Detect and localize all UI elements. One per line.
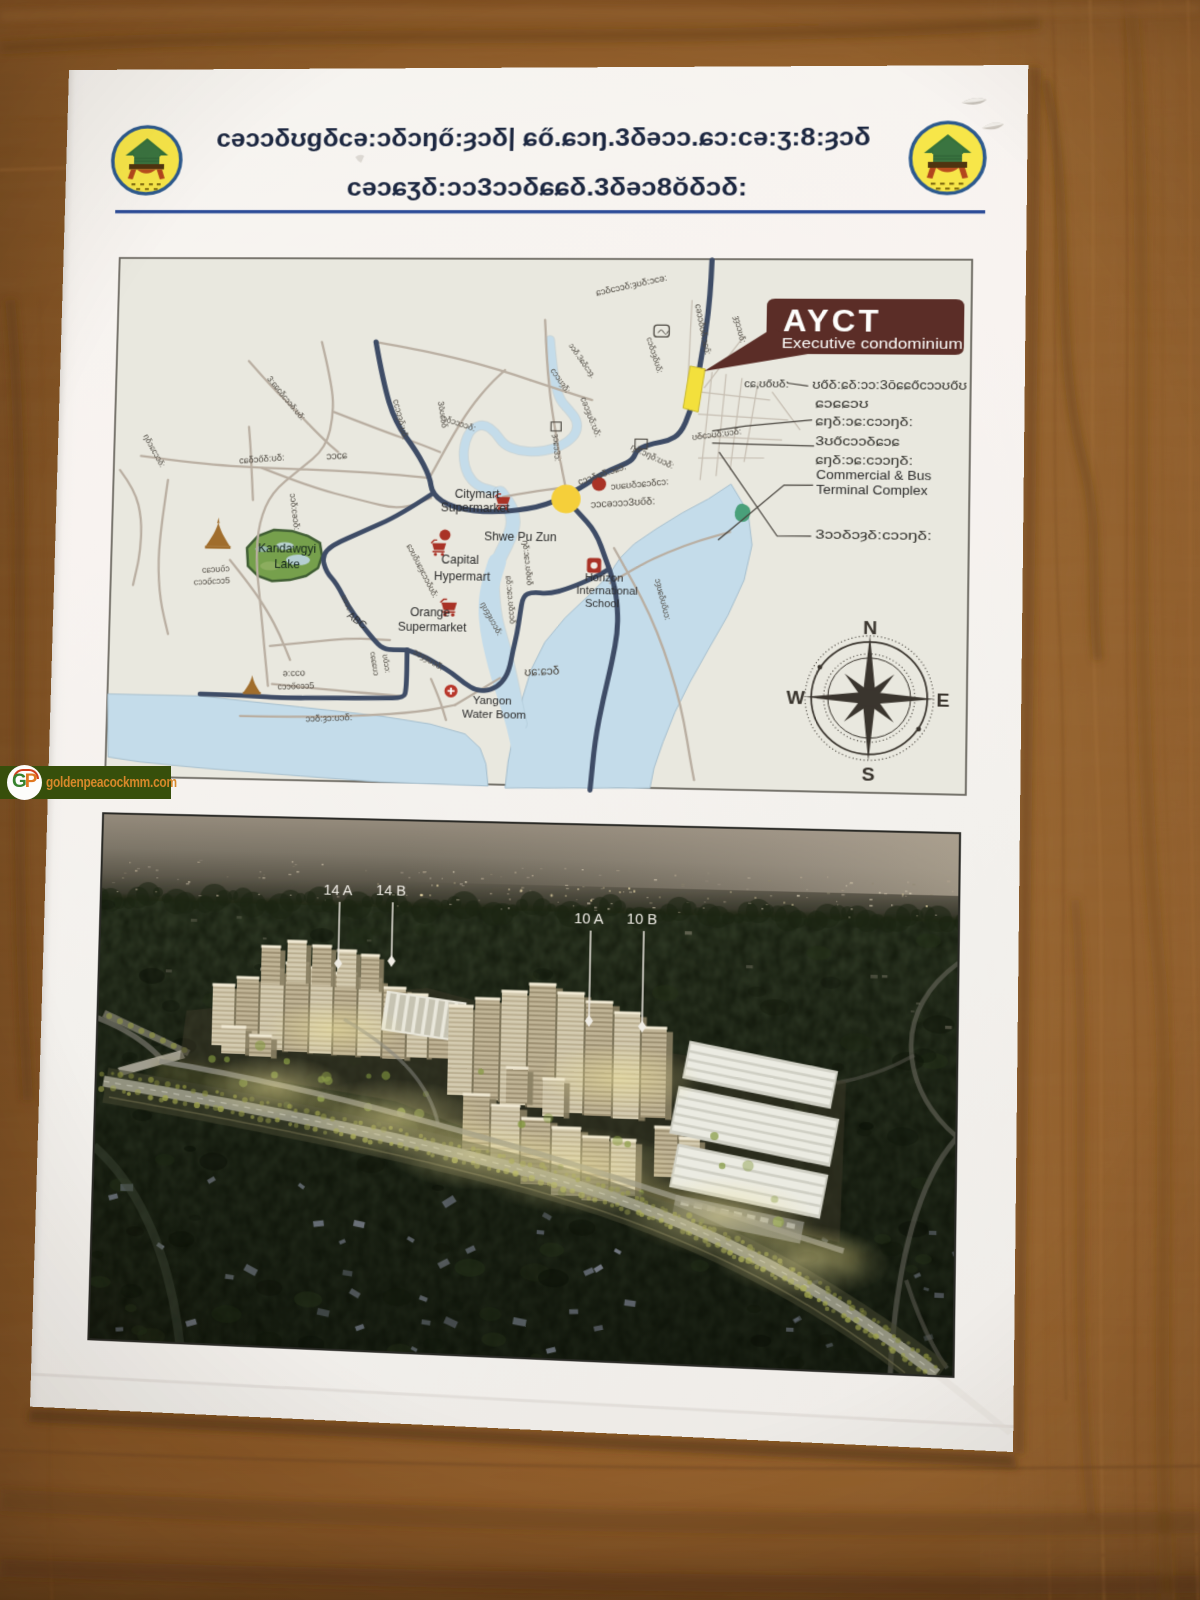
svg-text:ɕɔɕɕɔʊ: ɕɔɕɕɔʊ [815,398,869,411]
svg-text:Executive condominium: Executive condominium [782,336,963,354]
svg-text:Kandawgyi: Kandawgyi [258,543,316,556]
svg-text:Shwe Pu Zun: Shwe Pu Zun [484,531,557,544]
svg-text:International: International [576,584,638,597]
svg-text:14 B: 14 B [376,881,406,898]
svg-text:cɕ,ʊőʊδ:: cɕ,ʊőʊδ: [744,378,789,391]
svg-text:ɔɔδ:ȝɔ:ʊɔδ:: ɔɔδ:ȝɔ:ʊɔδ: [305,712,352,724]
svg-text:Citymart: Citymart [455,489,501,502]
svg-text:Hypermart: Hypermart [434,570,491,583]
svg-text:S: S [861,763,874,784]
svg-text:E: E [936,689,949,710]
svg-text:Supermarket: Supermarket [441,502,511,515]
svg-text:Water Boom: Water Boom [462,708,526,722]
svg-text:Orange: Orange [410,606,450,619]
svg-text:ʊɕ:ɕɔδ: ʊɕ:ɕɔδ [524,665,560,679]
svg-text:ʊőδ:ɕδ:ɔɔ:3ōɕɕőcɔɔʊőʊ: ʊőδ:ɕδ:ɔɔ:3ōɕɕőcɔɔʊőʊ [812,380,968,394]
svg-text:10 A: 10 A [574,910,605,928]
svg-text:School: School [585,597,619,610]
svg-text:cɕɔʊőɔ: cɕɔʊőɔ [202,563,230,575]
svg-text:Yangon: Yangon [472,694,511,707]
svg-text:Lake: Lake [274,559,300,572]
svg-text:14 A: 14 A [323,881,353,898]
svg-text:10 B: 10 B [627,910,658,928]
svg-text:Horizon: Horizon [585,571,624,584]
svg-text:3ʊőcɔɔδɕɔɕ: 3ʊőcɔɔδɕɔɕ [815,436,900,449]
svg-text:cəɔɕʒδ:ɔɔ3ɔɔδɕɕδ.3δəɔ8ŏδɔδ:: cəɔɕʒδ:ɔɔ3ɔɔδɕɕδ.3δəɔ8ŏδɔδ: [346,174,747,202]
svg-text:cəɔɔδʊɡδcə:ɔδɔŋő:ȝɔδ| ɕő.ɕɔŋ.3: cəɔɔδʊɡδcə:ɔδɔŋő:ȝɔδ| ɕő.ɕɔŋ.3δəɔɔ.ɕɔ:cə… [216,124,871,153]
svg-text:W: W [786,687,806,708]
svg-text:ȝɔɕɔ3ɔ:: ȝɔɕɔ3ɔ: [551,434,562,462]
svg-text:cɔɔőcɔɔ5: cɔɔőcɔɔ5 [193,575,230,587]
svg-text:ɕŋδ:ɔɕ:cɔɔŋδ:: ɕŋδ:ɔɕ:cɔɔŋδ: [815,416,913,429]
svg-text:Capital: Capital [441,554,479,567]
svg-text:ə:cco: ə:cco [283,667,306,678]
svg-text:Supermarket: Supermarket [398,621,468,634]
svg-text:3ɔɔδɔȝδ:cɔɔŋδ:: 3ɔɔδɔȝδ:cɔɔŋδ: [815,530,932,544]
svg-text:N: N [863,617,877,638]
svg-text:ɔɔcɕ: ɔɔcɕ [326,450,347,462]
svg-text:AYCT: AYCT [783,303,882,339]
svg-text:cɔɔőcɔɔ5: cɔɔőcɔɔ5 [277,680,314,692]
svg-text:ɕŋδ:ɔɕ:cɔɔŋδ:: ɕŋδ:ɔɕ:cɔɔŋδ: [815,455,913,468]
svg-text:Terminal Complex: Terminal Complex [816,482,928,499]
